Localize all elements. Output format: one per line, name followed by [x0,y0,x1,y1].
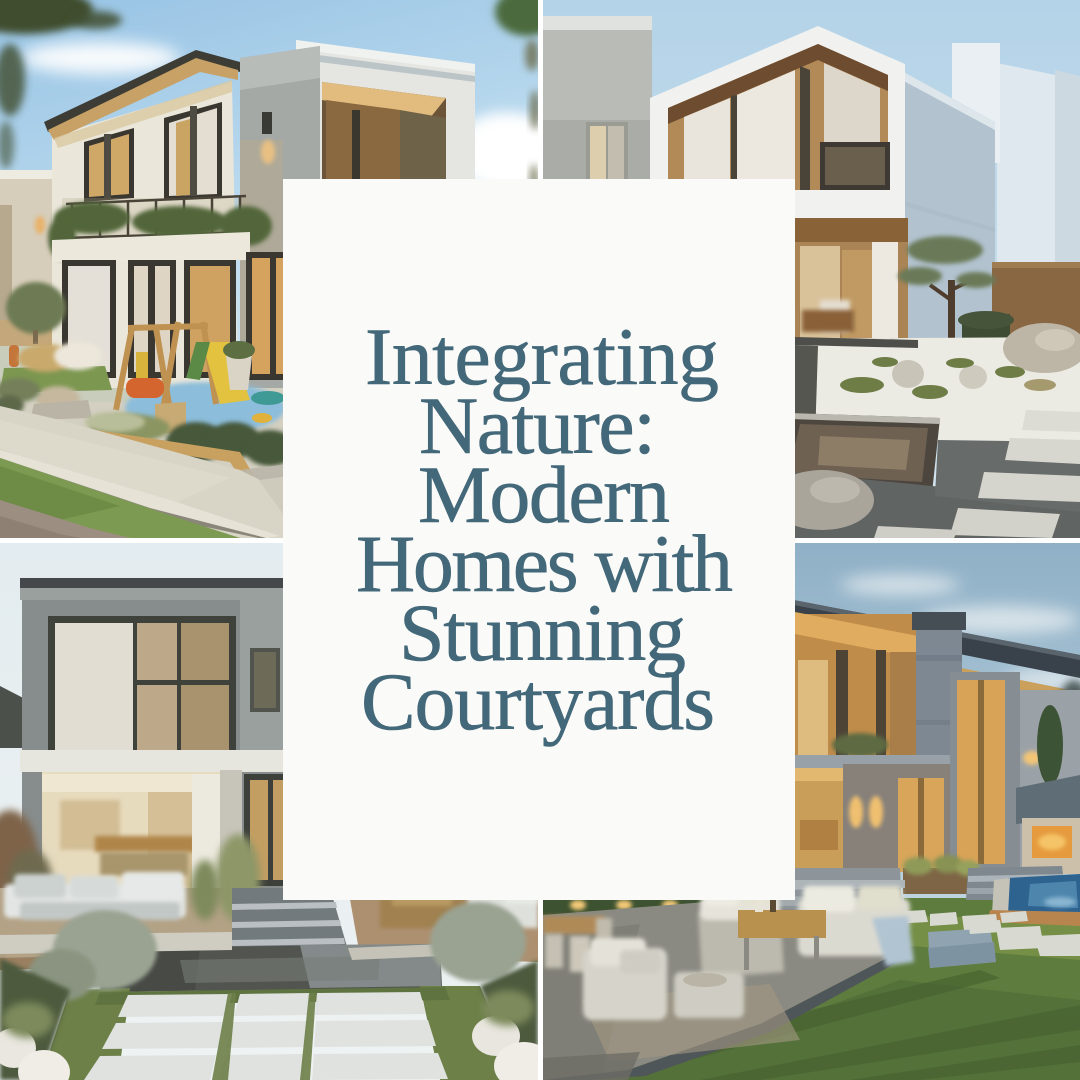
svg-text:Courtyards: Courtyards [361,656,715,747]
